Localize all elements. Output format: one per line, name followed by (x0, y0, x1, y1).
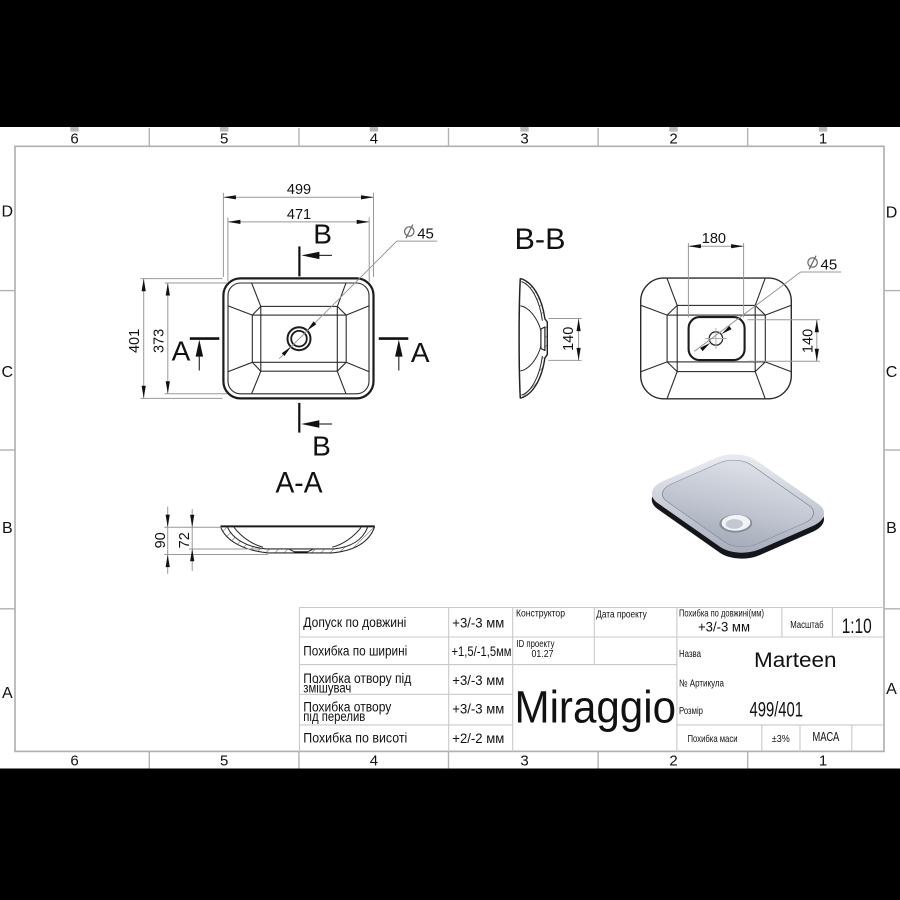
svg-text:A: A (886, 681, 897, 698)
svg-text:№ Артикула: № Артикула (679, 678, 724, 689)
svg-text:Конструктор: Конструктор (516, 608, 565, 619)
svg-text:2: 2 (669, 131, 677, 148)
svg-text:Похибка маси: Похибка маси (688, 733, 738, 745)
svg-text:+2/-2 мм: +2/-2 мм (452, 730, 504, 746)
svg-text:4: 4 (370, 752, 378, 769)
svg-text:1:10: 1:10 (842, 615, 872, 638)
svg-text:Miraggio: Miraggio (515, 682, 677, 733)
svg-text:B: B (313, 219, 332, 250)
svg-text:+3/-3 мм: +3/-3 мм (452, 672, 504, 688)
svg-text:2: 2 (669, 752, 677, 769)
svg-text:180: 180 (702, 231, 726, 247)
svg-text:Похибка по ширині: Похибка по ширині (303, 644, 407, 659)
svg-text:C: C (2, 364, 14, 381)
svg-text:Дата проекту: Дата проекту (596, 610, 647, 621)
svg-text:Назва: Назва (679, 649, 701, 660)
svg-text:3: 3 (520, 131, 528, 148)
svg-text:A-A: A-A (276, 466, 323, 499)
svg-text:471: 471 (287, 207, 311, 223)
svg-text:45: 45 (821, 256, 838, 273)
svg-text:72: 72 (177, 532, 193, 548)
svg-text:Розмір: Розмір (679, 706, 703, 717)
svg-text:6: 6 (70, 131, 78, 148)
svg-text:5: 5 (220, 131, 228, 148)
svg-text:5: 5 (220, 752, 228, 769)
svg-text:B: B (2, 520, 13, 537)
svg-text:499: 499 (287, 182, 311, 198)
svg-text:A: A (2, 685, 13, 702)
svg-text:499/401: 499/401 (750, 699, 804, 722)
svg-text:1: 1 (819, 752, 827, 769)
svg-text:6: 6 (70, 752, 78, 769)
svg-text:B-B: B-B (515, 223, 566, 256)
svg-text:A: A (411, 337, 430, 368)
svg-text:D: D (2, 203, 14, 220)
svg-text:401: 401 (127, 329, 143, 353)
svg-text:Marteen: Marteen (754, 649, 837, 672)
svg-text:МАСА: МАСА (812, 730, 839, 744)
svg-text:+1,5/-1,5мм: +1,5/-1,5мм (452, 643, 512, 659)
svg-text:під перелив: під перелив (303, 709, 365, 724)
svg-text:D: D (886, 204, 898, 221)
svg-text:3: 3 (520, 752, 528, 769)
svg-text:+3/-3 мм: +3/-3 мм (452, 614, 504, 630)
svg-text:A: A (172, 335, 191, 366)
svg-text:+3/-3 мм: +3/-3 мм (698, 618, 750, 634)
svg-text:Допуск по довжині: Допуск по довжині (303, 615, 406, 630)
svg-text:01.27: 01.27 (532, 649, 554, 660)
svg-text:373: 373 (151, 329, 167, 353)
svg-text:+3/-3 мм: +3/-3 мм (452, 701, 504, 717)
svg-text:140: 140 (561, 327, 577, 351)
svg-text:Похибка по висоті: Похибка по висоті (303, 731, 407, 746)
svg-text:змішувач: змішувач (303, 681, 351, 696)
svg-text:1: 1 (819, 131, 827, 148)
svg-text:Масштаб: Масштаб (790, 619, 824, 631)
svg-text:B: B (312, 430, 331, 461)
svg-text:±3%: ±3% (772, 733, 790, 745)
svg-text:140: 140 (800, 329, 816, 353)
svg-text:B: B (886, 520, 897, 537)
svg-text:4: 4 (370, 131, 378, 148)
svg-text:45: 45 (417, 225, 434, 242)
svg-text:90: 90 (153, 532, 169, 548)
svg-text:C: C (886, 364, 898, 381)
